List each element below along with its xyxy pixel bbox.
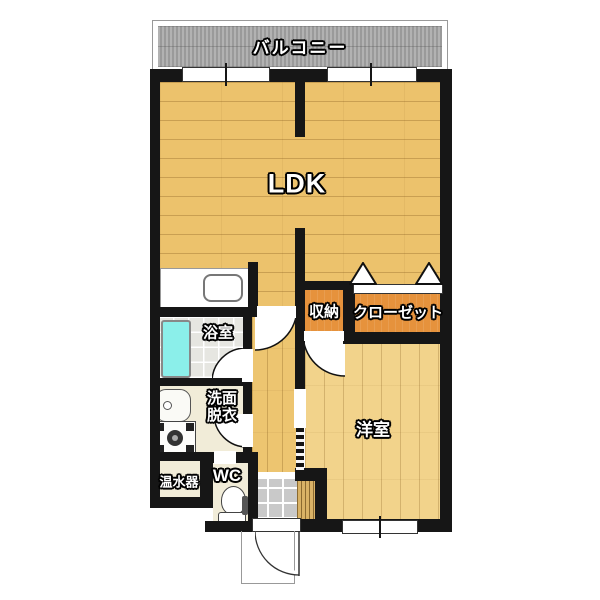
window-balcony-left-mullion — [225, 63, 227, 86]
closet-folding-door — [353, 284, 443, 294]
washing-machine-drum-dot — [172, 435, 178, 441]
bathroom-door-opening — [242, 349, 253, 382]
wall-western-room-top — [343, 332, 452, 344]
wc-label: WC — [213, 466, 241, 486]
wall-water-heater-bottom — [150, 497, 213, 508]
western-room-sliding-door — [296, 428, 304, 470]
storage-label: 収納 — [309, 301, 339, 322]
washing-machine-corner-tr — [186, 423, 194, 431]
balcony-label: バルコニー — [253, 34, 348, 59]
wall-bathroom-top — [150, 307, 258, 317]
wall-right — [440, 69, 452, 532]
washroom-door-opening — [242, 414, 253, 447]
hallway-door-opening — [257, 306, 296, 318]
washroom-label: 洗面 脱衣 — [207, 390, 237, 424]
wc-door-opening — [214, 451, 236, 464]
window-balcony-right-mullion — [370, 63, 372, 86]
closet-label: クローゼット — [353, 302, 443, 323]
bathtub-icon — [161, 320, 191, 378]
western-room-label: 洋室 — [356, 416, 390, 441]
floor-plan: バルコニー LDK 収納 クローゼット 浴室 洗面 脱衣 温水器 WC 洋室 — [0, 0, 600, 600]
wall-left — [150, 69, 160, 508]
washroom-label-line2: 脱衣 — [207, 407, 237, 424]
storage-door-opening — [304, 331, 344, 341]
ldk-label: LDK — [268, 169, 327, 200]
closet-fold-triangle-left — [349, 262, 377, 285]
window-balcony-right — [327, 67, 417, 82]
kitchen-sink-icon — [203, 274, 243, 302]
wall-ldk-top-stub — [295, 82, 305, 137]
bathroom-label: 浴室 — [203, 322, 233, 343]
western-room-slide-opening — [294, 389, 306, 428]
closet-fold-triangle-right — [415, 262, 443, 285]
wall-hall-western-divider — [295, 338, 305, 390]
entrance-step-edge — [252, 472, 297, 479]
window-western-room-mullion — [379, 516, 381, 538]
wall-entrance-east — [315, 468, 327, 532]
entrance-door-swing — [255, 531, 302, 578]
entrance-door-opening — [252, 518, 301, 532]
entrance-step — [297, 481, 315, 521]
water-heater-label: 温水器 — [159, 472, 198, 491]
washbasin-drain-icon — [163, 401, 172, 410]
washbasin-icon — [155, 389, 191, 422]
wall-bathroom-bottom — [150, 378, 252, 386]
entrance-tile — [252, 479, 297, 519]
washroom-label-line1: 洗面 — [207, 390, 237, 407]
wall-kitchen-right — [248, 262, 258, 310]
